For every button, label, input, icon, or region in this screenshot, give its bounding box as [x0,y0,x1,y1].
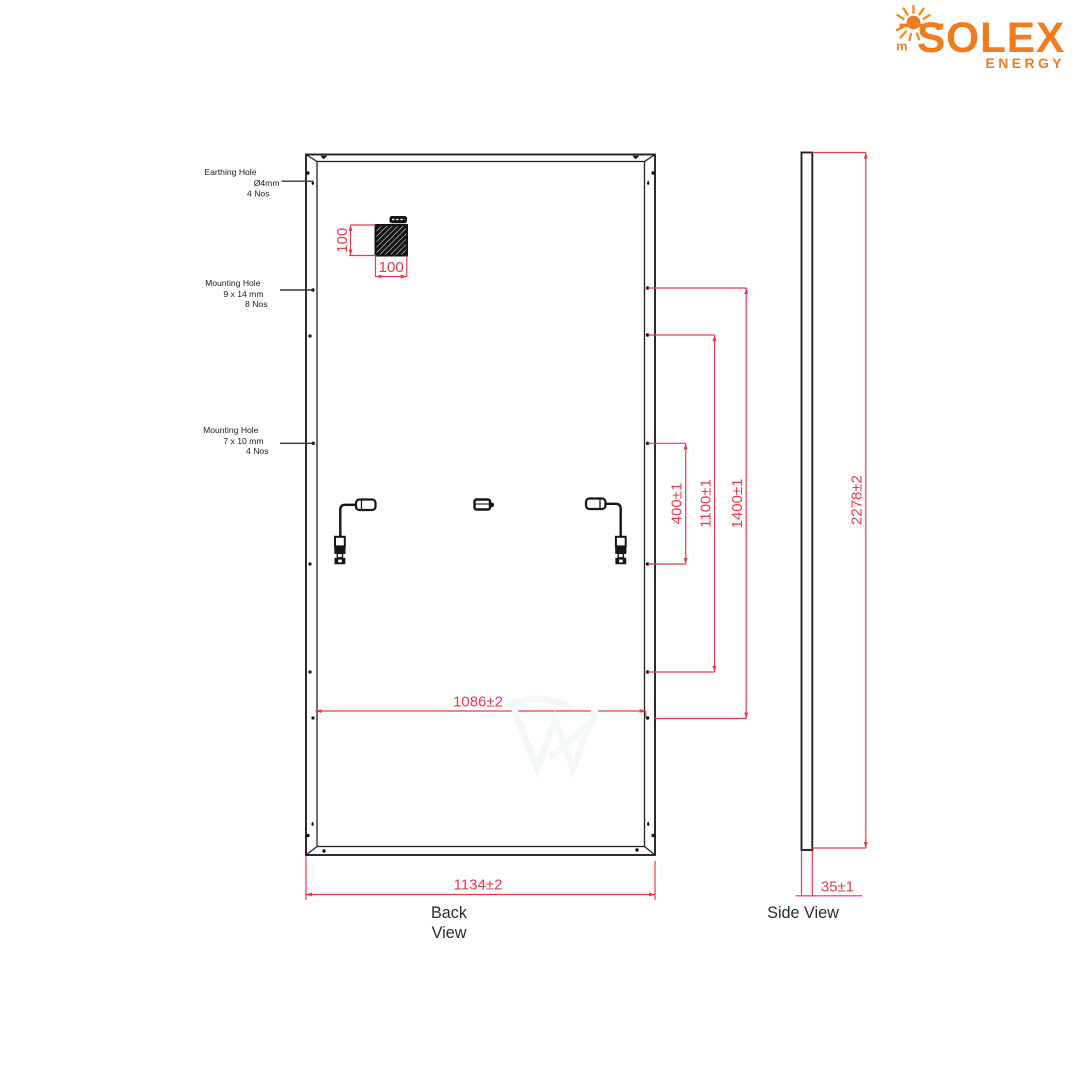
svg-text:100: 100 [379,259,404,276]
svg-text:9 x 14 mm: 9 x 14 mm [223,289,263,299]
svg-text:4 Nos: 4 Nos [247,188,269,198]
svg-text:View: View [432,924,467,942]
svg-text:7 x 10 mm: 7 x 10 mm [223,436,263,446]
svg-text:Mounting Hole: Mounting Hole [205,278,261,288]
svg-text:1134±2: 1134±2 [454,877,503,894]
svg-text:100: 100 [334,228,351,253]
svg-text:Ø4mm: Ø4mm [254,178,280,188]
svg-text:1100±1: 1100±1 [697,479,714,528]
svg-text:Side View: Side View [767,904,839,922]
svg-text:1400±1: 1400±1 [729,479,746,529]
svg-text:Back: Back [431,904,468,922]
svg-text:4 Nos: 4 Nos [246,446,268,456]
svg-text:ENERGY: ENERGY [985,55,1065,71]
svg-text:Earthing Hole: Earthing Hole [204,167,256,177]
svg-text:400±1: 400±1 [669,483,686,525]
svg-text:35±1: 35±1 [821,879,854,896]
svg-text:8 Nos: 8 Nos [245,299,267,309]
svg-text:1086±2: 1086±2 [453,694,503,711]
svg-text:Mounting Hole: Mounting Hole [203,425,259,435]
svg-text:m: m [896,39,908,54]
svg-text:2278±2: 2278±2 [848,475,865,525]
